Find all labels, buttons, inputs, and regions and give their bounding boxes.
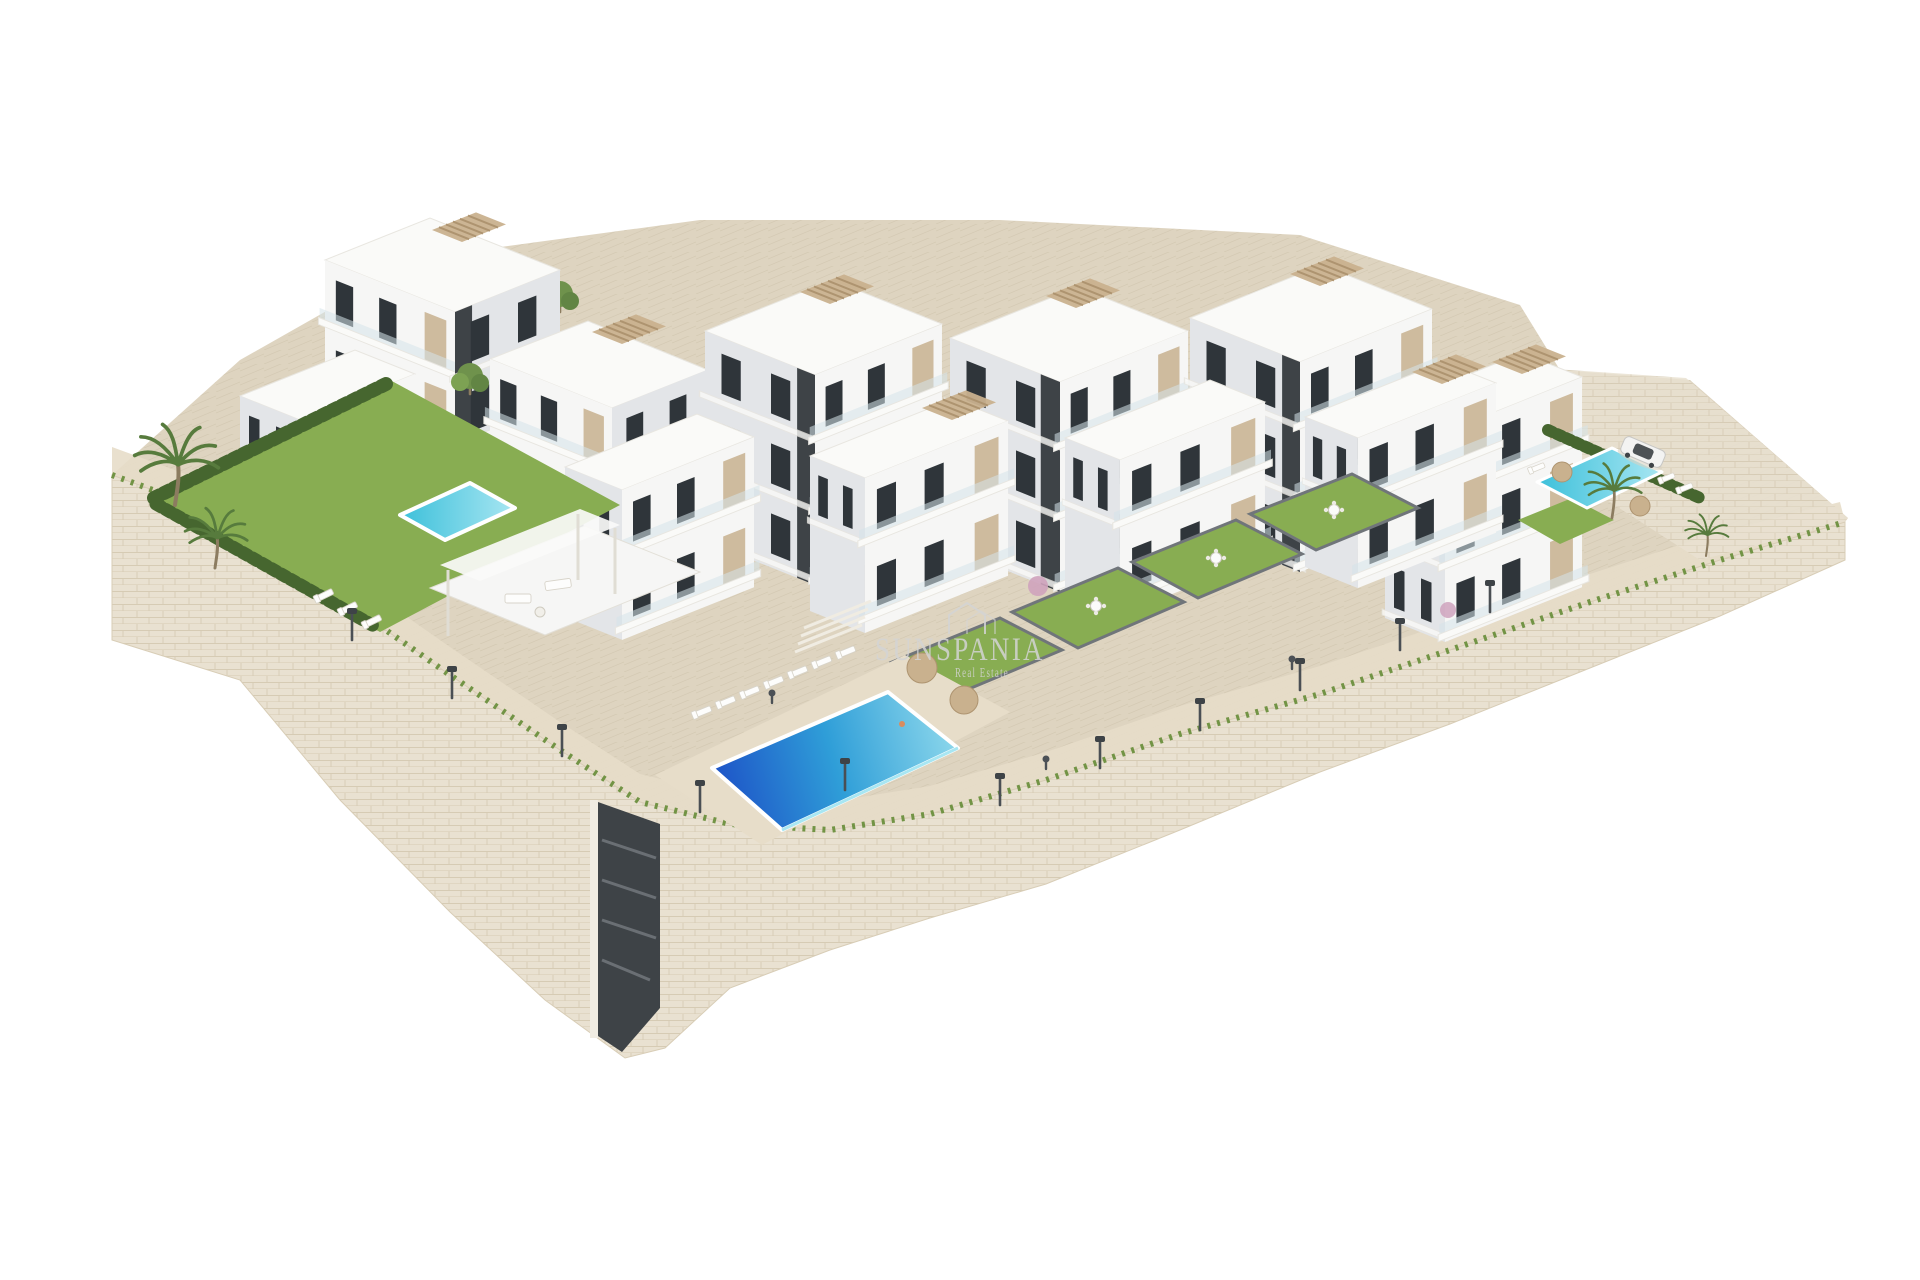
flowering-shrub [1028, 576, 1048, 596]
watermark-brand: SUNSPANIA [875, 632, 1045, 668]
wall-entrance-stair [590, 800, 660, 1052]
architectural-render: SUNSPANIA Real Estate [0, 0, 1920, 1280]
swimmer [899, 721, 905, 727]
flowering-shrub [1440, 602, 1456, 618]
watermark-tagline: Real Estate [955, 666, 1009, 681]
render-canvas: Aerial 3D architectural rendering of a m… [0, 0, 1920, 1280]
